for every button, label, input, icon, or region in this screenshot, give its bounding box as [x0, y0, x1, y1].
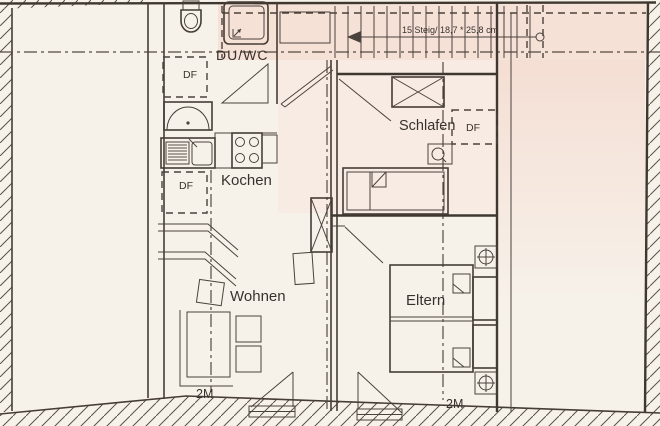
bedroom-label: Schlafen — [399, 118, 455, 134]
living-label: Wohnen — [230, 288, 286, 305]
bathroom-label: DU/WC — [216, 47, 268, 63]
left-wall-hatch — [0, 9, 12, 412]
roof-window-bath-label: DF — [183, 69, 197, 81]
kitchen-label: Kochen — [221, 172, 272, 189]
floor-plan-drawing: 15 Steig/ 18,7 * 25,8 cm DU/WC DF — [0, 0, 660, 426]
stair-note-label: 15 Steig/ 18,7 * 25,8 cm — [402, 25, 498, 35]
parents-label: Eltern — [406, 292, 445, 309]
roof-window-bedroom-label: DF — [466, 122, 480, 134]
bedroom-tint — [278, 60, 497, 213]
top-wall-edge — [0, 3, 656, 4]
height-mark-parents: 2M — [446, 397, 463, 411]
height-mark-living: 2M — [196, 387, 213, 401]
right-zone-tint — [498, 60, 645, 310]
roof-window-kitchen-label: DF — [179, 180, 193, 192]
floor-plan-canvas: 15 Steig/ 18,7 * 25,8 cm DU/WC DF — [0, 0, 660, 426]
